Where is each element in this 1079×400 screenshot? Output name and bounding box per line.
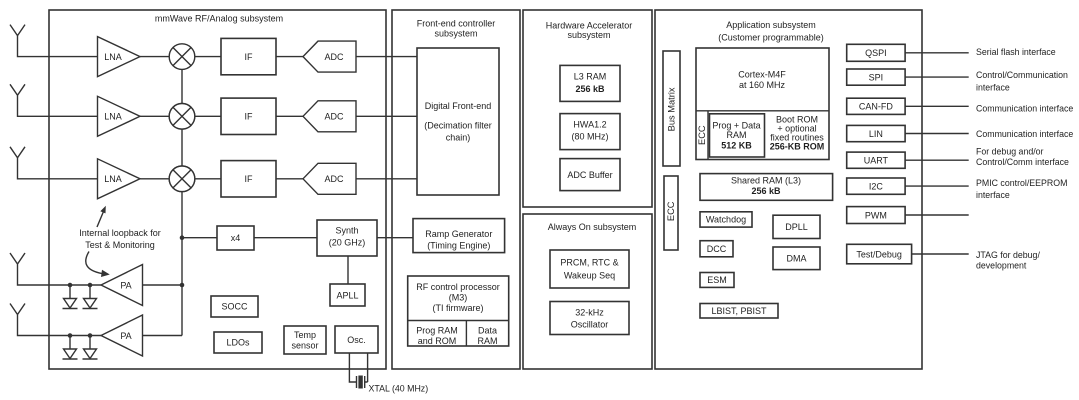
svg-text:Shared RAM (L3): Shared RAM (L3) (731, 176, 801, 186)
svg-text:Wakeup Seq: Wakeup Seq (564, 270, 615, 280)
svg-text:Control/Comm interface: Control/Comm interface (976, 157, 1069, 167)
svg-text:32-kHz: 32-kHz (575, 308, 604, 318)
svg-text:LNA: LNA (104, 112, 122, 122)
svg-text:ADC: ADC (324, 174, 344, 184)
svg-text:IF: IF (245, 52, 254, 62)
svg-text:Application subsystem: Application subsystem (726, 20, 816, 30)
svg-text:subsystem: subsystem (434, 29, 477, 39)
svg-text:LBIST, PBIST: LBIST, PBIST (711, 306, 767, 316)
svg-text:development: development (976, 261, 1027, 271)
svg-text:(Timing Engine): (Timing Engine) (427, 241, 490, 251)
svg-text:ESM: ESM (707, 275, 727, 285)
svg-text:Internal loopback for: Internal loopback for (79, 228, 161, 238)
svg-text:subsystem: subsystem (567, 30, 610, 40)
svg-text:IF: IF (245, 174, 254, 184)
svg-text:x4: x4 (231, 233, 241, 243)
svg-text:RAM: RAM (727, 130, 747, 140)
svg-text:(20 GHz): (20 GHz) (329, 238, 366, 248)
svg-text:SPI: SPI (869, 72, 884, 82)
svg-text:XTAL (40 MHz): XTAL (40 MHz) (369, 384, 429, 394)
svg-text:IF: IF (245, 112, 254, 122)
svg-text:Communication interface: Communication interface (976, 129, 1073, 139)
svg-text:(M3): (M3) (449, 293, 468, 303)
svg-text:Always On subsystem: Always On subsystem (548, 222, 637, 232)
svg-text:256-KB ROM: 256-KB ROM (770, 142, 825, 152)
svg-text:PRCM, RTC &: PRCM, RTC & (560, 257, 618, 267)
svg-text:Prog RAM: Prog RAM (416, 326, 458, 336)
svg-text:QSPI: QSPI (865, 48, 887, 58)
svg-text:Front-end controller: Front-end controller (417, 19, 496, 29)
svg-text:PA: PA (120, 281, 131, 291)
svg-text:Hardware Accelerator: Hardware Accelerator (546, 21, 633, 31)
svg-text:Digital Front-end: Digital Front-end (425, 101, 492, 111)
svg-text:For debug and/or: For debug and/or (976, 146, 1044, 156)
svg-text:LNA: LNA (104, 52, 122, 62)
svg-text:LDOs: LDOs (226, 338, 250, 348)
svg-text:ADC: ADC (324, 112, 344, 122)
svg-text:(Customer programmable): (Customer programmable) (718, 32, 824, 42)
svg-text:Oscillator: Oscillator (571, 320, 609, 330)
svg-text:interface: interface (976, 83, 1010, 93)
svg-text:L3 RAM: L3 RAM (574, 72, 607, 82)
svg-text:DCC: DCC (707, 244, 727, 254)
svg-text:ECC: ECC (666, 201, 676, 221)
svg-text:interface: interface (976, 190, 1010, 200)
svg-text:PA: PA (120, 331, 131, 341)
svg-text:Communication interface: Communication interface (976, 104, 1073, 114)
svg-text:ADC Buffer: ADC Buffer (567, 170, 612, 180)
svg-text:PMIC control/EEPROM: PMIC control/EEPROM (976, 178, 1067, 188)
svg-text:CAN-FD: CAN-FD (859, 102, 893, 112)
svg-text:sensor: sensor (291, 340, 318, 350)
svg-text:Watchdog: Watchdog (706, 215, 746, 225)
svg-text:(80 MHz): (80 MHz) (571, 132, 608, 142)
svg-text:chain): chain) (446, 132, 471, 142)
svg-text:Temp: Temp (294, 330, 316, 340)
svg-text:UART: UART (864, 155, 889, 165)
svg-text:(TI firmware): (TI firmware) (433, 303, 484, 313)
svg-text:Serial flash interface: Serial flash interface (976, 47, 1056, 57)
svg-text:Test/Debug: Test/Debug (856, 249, 902, 259)
svg-text:256 kB: 256 kB (751, 186, 781, 196)
svg-text:Prog + Data: Prog + Data (712, 121, 760, 131)
svg-text:LNA: LNA (104, 174, 122, 184)
svg-text:JTAG for debug/: JTAG for debug/ (976, 250, 1040, 260)
svg-text:Cortex-M4F: Cortex-M4F (738, 69, 786, 79)
svg-text:I2C: I2C (869, 181, 884, 191)
svg-text:(Decimation filter: (Decimation filter (424, 120, 492, 130)
svg-text:at 160 MHz: at 160 MHz (739, 80, 786, 90)
svg-text:APLL: APLL (336, 290, 358, 300)
svg-text:ECC: ECC (697, 125, 707, 145)
svg-text:DMA: DMA (787, 254, 807, 264)
svg-text:ADC: ADC (324, 52, 344, 62)
svg-text:256 kB: 256 kB (575, 84, 605, 94)
svg-text:Osc.: Osc. (347, 335, 366, 345)
svg-text:RF control processor: RF control processor (416, 282, 500, 292)
svg-text:PWM: PWM (865, 210, 887, 220)
svg-text:LIN: LIN (869, 129, 883, 139)
svg-text:mmWave RF/Analog subsystem: mmWave RF/Analog subsystem (155, 14, 283, 24)
svg-text:Test & Monitoring: Test & Monitoring (85, 240, 155, 250)
svg-text:SOCC: SOCC (221, 302, 248, 312)
svg-text:DPLL: DPLL (785, 222, 808, 232)
svg-text:Data: Data (478, 326, 497, 336)
svg-text:Synth: Synth (335, 226, 358, 236)
svg-text:512 KB: 512 KB (721, 140, 752, 150)
svg-text:Control/Communication: Control/Communication (976, 70, 1068, 80)
svg-text:and ROM: and ROM (418, 336, 457, 346)
svg-text:HWA1.2: HWA1.2 (573, 120, 606, 130)
svg-text:RAM: RAM (478, 336, 498, 346)
svg-text:Bus Matrix: Bus Matrix (667, 87, 677, 131)
svg-text:Ramp Generator: Ramp Generator (425, 229, 492, 239)
